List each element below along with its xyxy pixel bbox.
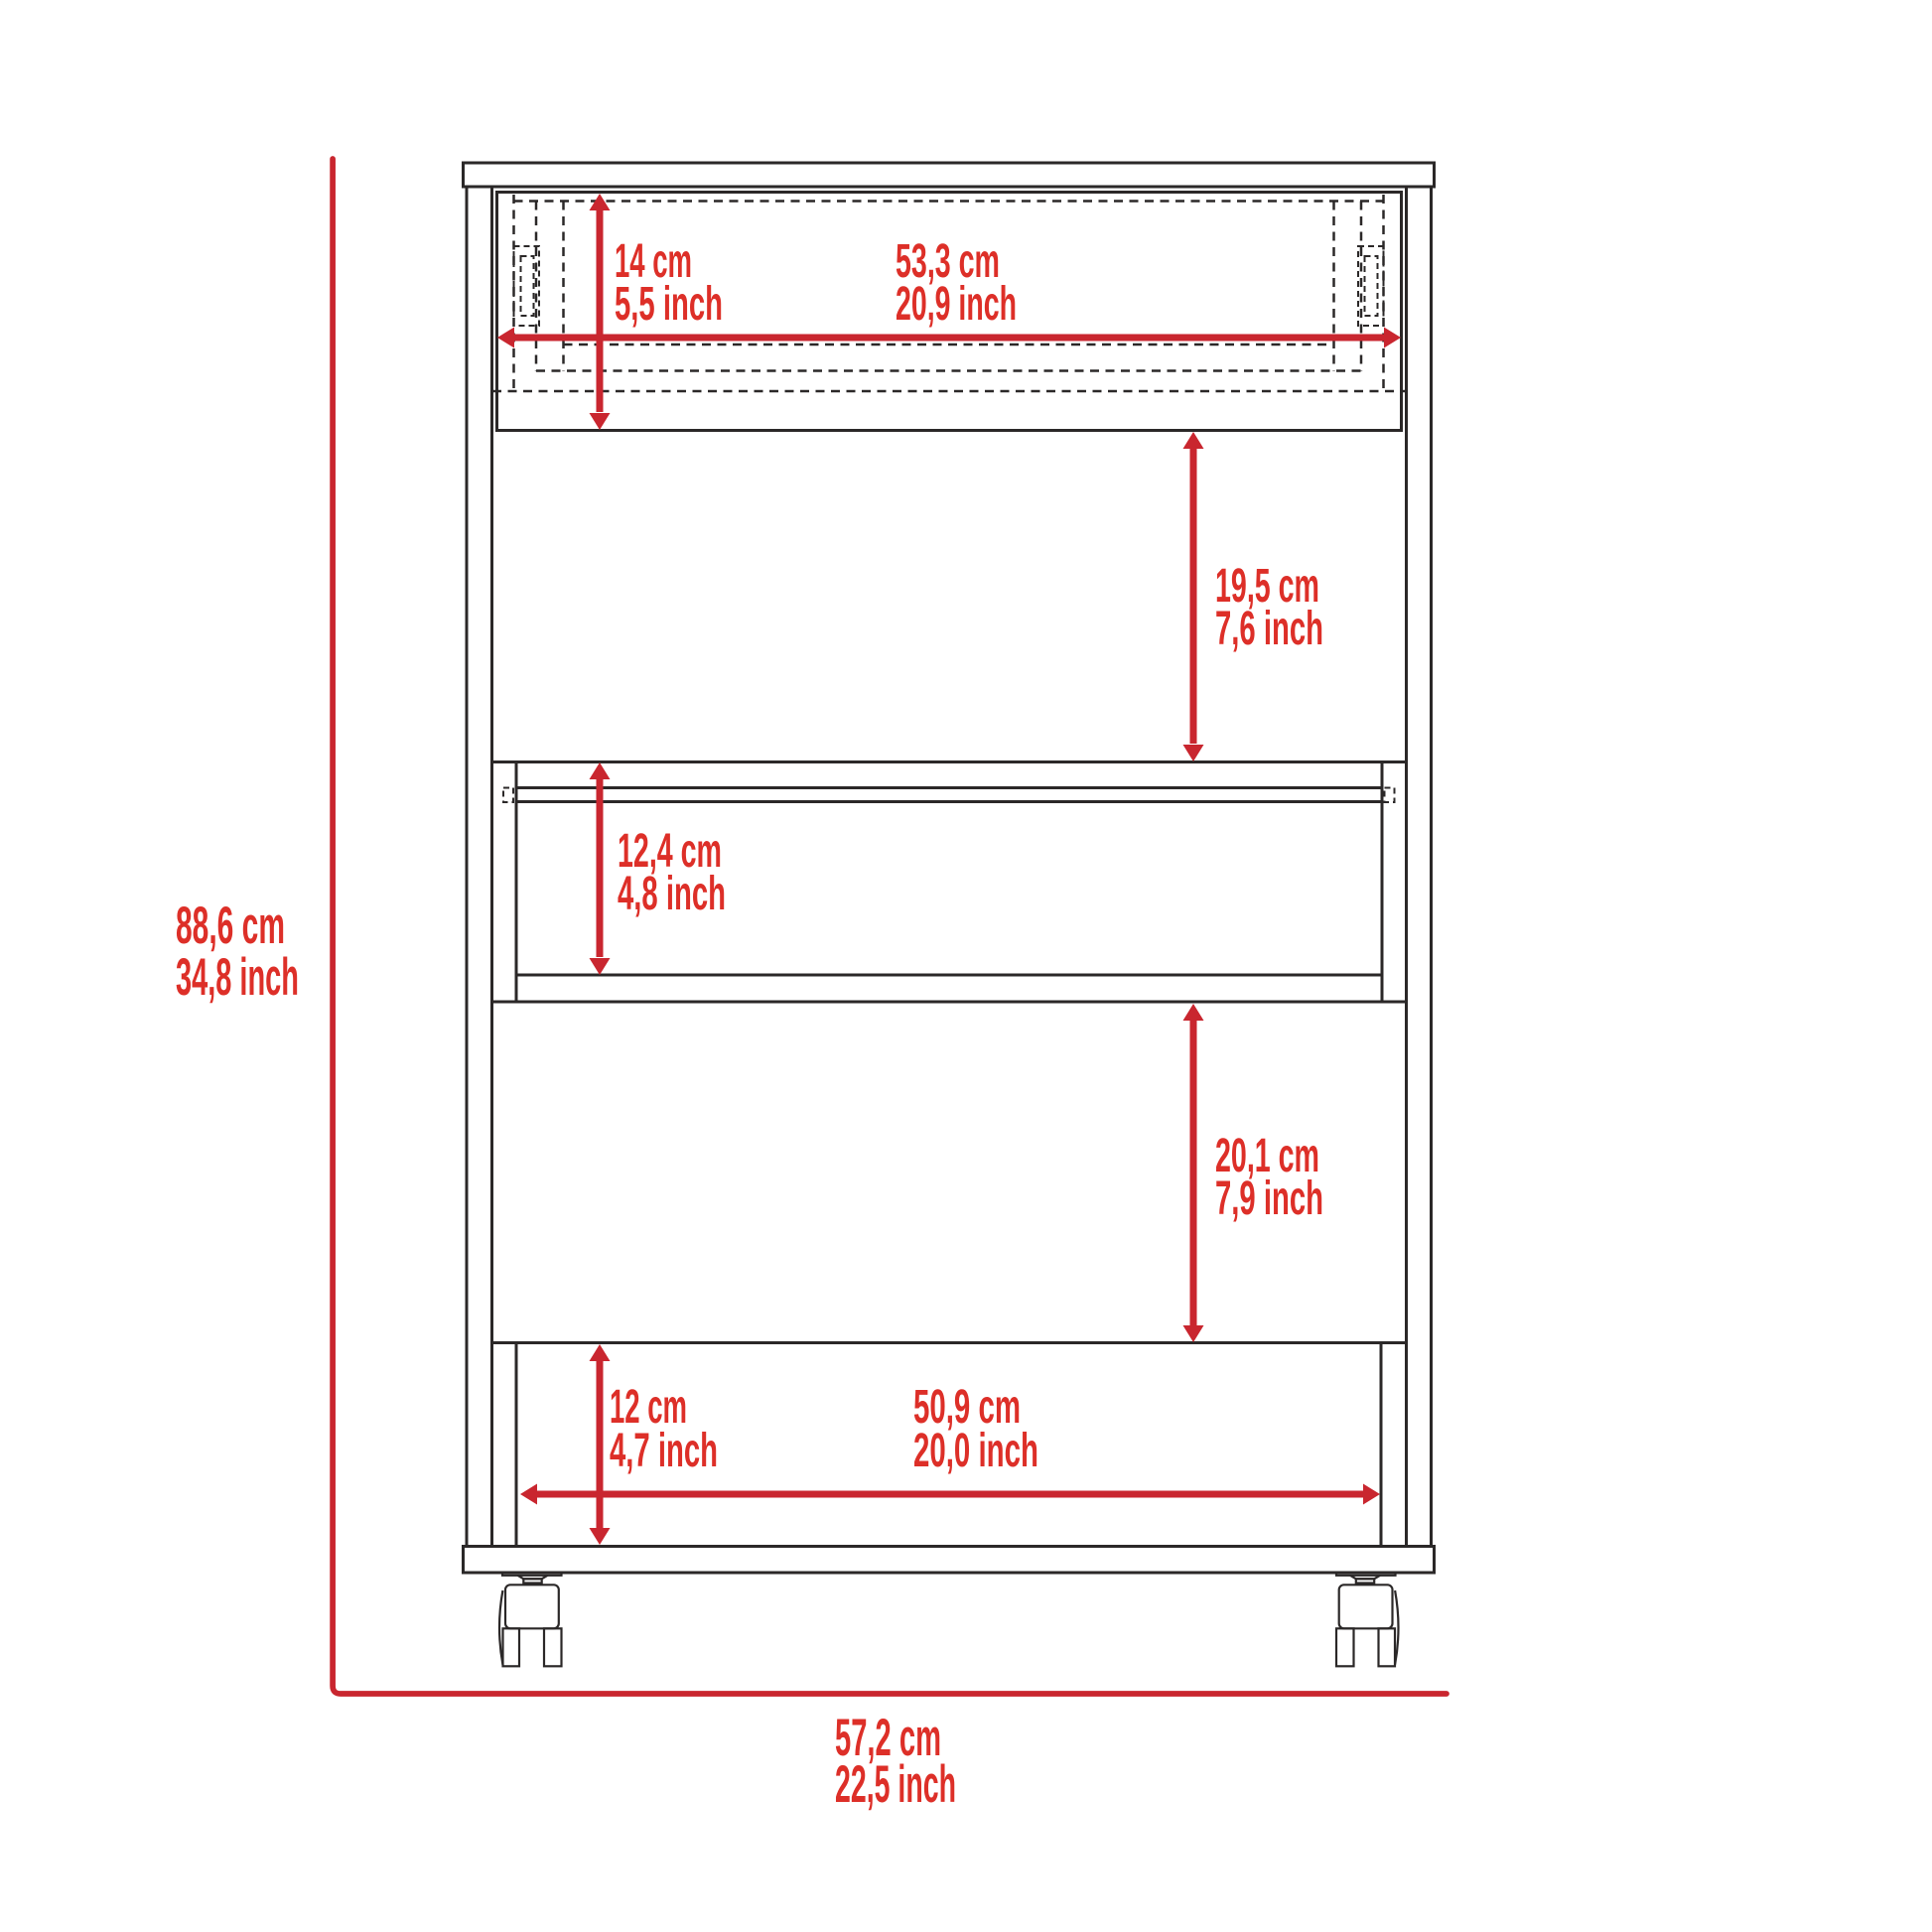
svg-text:7,9 inch: 7,9 inch [1215, 1173, 1323, 1225]
svg-text:34,8 inch: 34,8 inch [176, 948, 299, 1007]
svg-text:4,7 inch: 4,7 inch [610, 1425, 718, 1477]
svg-text:7,6 inch: 7,6 inch [1215, 603, 1323, 655]
svg-text:88,6 cm: 88,6 cm [176, 897, 285, 955]
svg-text:20,9 inch: 20,9 inch [896, 278, 1017, 331]
svg-text:20,0 inch: 20,0 inch [913, 1425, 1038, 1477]
svg-text:5,5 inch: 5,5 inch [615, 278, 723, 331]
svg-text:22,5 inch: 22,5 inch [835, 1755, 956, 1814]
svg-text:4,8 inch: 4,8 inch [618, 868, 726, 920]
